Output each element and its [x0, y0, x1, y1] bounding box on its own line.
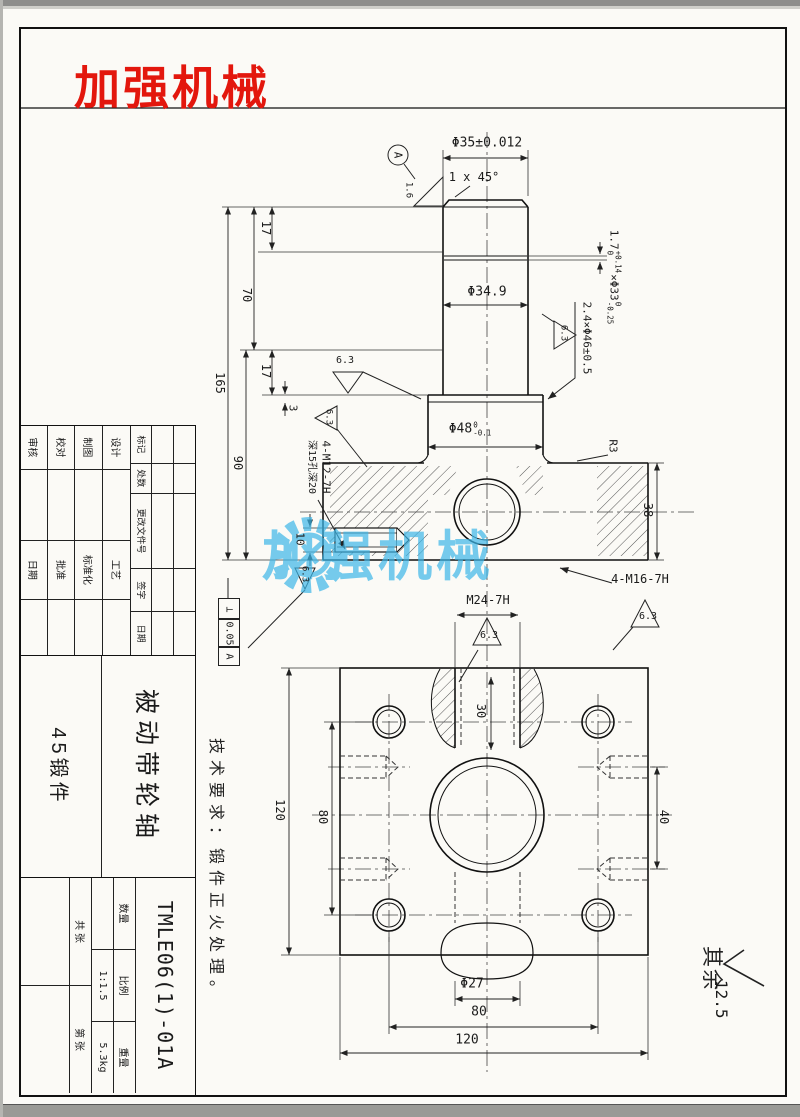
dim-17-mid: 17: [260, 364, 272, 378]
roughness-m24: 6.3: [480, 631, 498, 641]
weight-value: 5.3kg: [91, 1022, 113, 1093]
dia48-main: Φ48: [449, 423, 472, 436]
dim-m12-depth: 深15孔深20: [306, 440, 316, 494]
rev-header-sign: 签字: [130, 569, 152, 612]
dia48-sub: -0.1: [473, 429, 491, 437]
dim-dia48: Φ480-0.1: [449, 422, 492, 437]
tolerance-symbol-cell: ⊥: [218, 598, 240, 620]
scale-value: 1:1.5: [91, 950, 113, 1022]
role-approve: 批准: [47, 541, 75, 601]
rev-header-fileno: 更改文件号: [130, 494, 152, 570]
technical-requirements: 技术要求：锻件正火处理。: [207, 738, 223, 1002]
role-process: 工艺: [102, 541, 130, 601]
dim-3: 3: [288, 405, 299, 412]
dim-dia35: Φ35±0.012: [452, 137, 522, 150]
dim-m12: 4-M12-7H: [321, 441, 332, 494]
dim-80-horiz: 80: [471, 1006, 487, 1019]
tolerance-value-cell: 0.05: [218, 618, 240, 648]
scale-label: 比例: [113, 950, 135, 1022]
role-draft: 制图: [74, 426, 102, 470]
dim-groove-dia33: 1.7+0.140×Φ330-0.25: [607, 230, 622, 325]
dim-30: 30: [475, 704, 487, 718]
rev-header-count: 处数: [130, 464, 152, 494]
roughness-1-6: 1.6: [404, 182, 413, 198]
roughness-m12: 6.3: [324, 409, 333, 425]
dim-groove-dia46: 2.4×Φ46±0.5: [582, 302, 593, 375]
dim-165: 165: [214, 372, 226, 394]
dim-dia27: Φ27: [460, 978, 483, 991]
part-name: 被动带轮轴: [101, 656, 195, 877]
roughness-shaft: 6.3: [336, 356, 354, 366]
tolerance-symbol: ⊥: [224, 606, 235, 612]
g33-pre-sub: 0: [607, 251, 615, 274]
dim-m16: 4-M16-7H: [611, 573, 669, 585]
rev-header-mark: 标记: [130, 426, 152, 464]
title-block: 标记 处数 更改文件号 签字 日期 设计 工艺 制图 标准化: [20, 425, 196, 1096]
tolerance-datum-cell: A: [218, 646, 240, 666]
dim-dia34-9: Φ34.9: [467, 286, 506, 299]
part-name-section: 被动带轮轴 45锻件: [21, 656, 195, 878]
tolerance-datum: A: [224, 653, 235, 659]
roughness-m16: 6.3: [639, 612, 657, 622]
qty-value: [91, 878, 113, 950]
dim-r3: R3: [608, 439, 619, 452]
dim-40: 40: [658, 810, 670, 824]
dim-70: 70: [241, 288, 253, 302]
roughness-bore: 6.3: [300, 566, 309, 582]
dim-120-horiz: 120: [455, 1034, 478, 1047]
dim-10: 10: [295, 532, 306, 545]
sheet-total: 共 张: [69, 878, 91, 986]
dim-38: 38: [642, 503, 654, 517]
rest-roughness-block: 其余 12.5: [658, 946, 768, 1078]
company-logo: 加强机械: [74, 52, 270, 118]
drawing-number: TMLE06(1)-01A: [135, 878, 195, 1093]
tolerance-value: 0.05: [224, 621, 235, 645]
role-check: 校对: [47, 426, 75, 470]
part-outline: [323, 200, 648, 979]
revision-signature-section: 标记 处数 更改文件号 签字 日期 设计 工艺 制图 标准化: [21, 426, 195, 656]
role-review: 审核: [21, 426, 47, 470]
g33-pre: 1.7: [609, 230, 620, 250]
rev-header-date: 日期: [130, 612, 152, 655]
drawing-sheet: 加强机械 加强机械 Φ35±0.012 1 x 45° Φ34.9 Φ480-0…: [0, 0, 800, 1117]
dim-m24: M24-7H: [466, 594, 509, 606]
dim-17-top: 17: [260, 221, 272, 235]
role-date: 日期: [21, 541, 47, 601]
dim-120-vert: 120: [274, 799, 286, 821]
roughness-groove46: 6.3: [559, 325, 568, 341]
g33-sub: -0.25: [607, 302, 615, 325]
weight-label: 重量: [113, 1022, 135, 1093]
roughness-check-icon: [722, 946, 768, 992]
sheet-number: 第 张: [69, 986, 91, 1093]
g33-pre-sup: +0.14: [614, 251, 622, 274]
dim-90: 90: [232, 456, 244, 470]
g33-main: ×Φ33: [609, 274, 620, 301]
role-design: 设计: [102, 426, 130, 470]
datum-a-label: A: [393, 152, 404, 159]
dim-80-vert: 80: [317, 810, 329, 824]
role-standard: 标准化: [74, 541, 102, 601]
drawing-number-section: TMLE06(1)-01A 数量 比例 重量 1:1.5 5.3kg 共 张 第…: [21, 878, 195, 1093]
material: 45锻件: [21, 656, 101, 877]
qty-label: 数量: [113, 878, 135, 950]
dim-chamfer: 1 x 45°: [449, 171, 500, 183]
g33-sup: 0: [614, 302, 622, 325]
